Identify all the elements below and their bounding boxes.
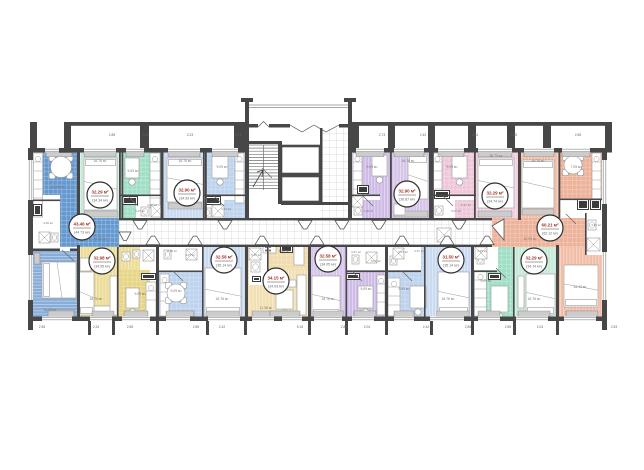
svg-text:16.76 м²: 16.76 м² (532, 159, 546, 163)
svg-text:3.29 м²: 3.29 м² (477, 249, 487, 253)
svg-text:2.53: 2.53 (611, 325, 618, 329)
svg-text:16.76 м²: 16.76 м² (216, 297, 230, 301)
svg-text:2.85: 2.85 (465, 325, 472, 329)
svg-text:2.42: 2.42 (420, 133, 427, 137)
svg-text:43.46 м²: 43.46 м² (74, 222, 91, 227)
svg-text:2.85: 2.85 (575, 133, 582, 137)
svg-text:32.90 м²: 32.90 м² (179, 188, 196, 193)
svg-text:7.05 м²: 7.05 м² (570, 165, 582, 169)
svg-text:32.29 м²: 32.29 м² (526, 256, 543, 261)
svg-text:2.04: 2.04 (364, 325, 371, 329)
svg-text:3.37 м²: 3.37 м² (351, 250, 361, 254)
svg-text:4.36 м²: 4.36 м² (591, 223, 601, 227)
svg-text:32.29 м²: 32.29 м² (92, 190, 109, 195)
svg-text:16.76 м²: 16.76 м² (94, 159, 108, 163)
svg-text:2.85: 2.85 (109, 133, 116, 137)
svg-text:32.58 м²: 32.58 м² (216, 255, 233, 260)
svg-text:(35.14 м²): (35.14 м²) (216, 264, 232, 268)
svg-text:2.85: 2.85 (505, 325, 512, 329)
svg-text:16.43 м²: 16.43 м² (44, 308, 58, 312)
svg-text:2.42: 2.42 (219, 325, 226, 329)
svg-text:9.09 м²: 9.09 м² (127, 169, 139, 173)
svg-text:(30.87 м²): (30.87 м²) (399, 198, 415, 202)
svg-text:2.73: 2.73 (235, 133, 242, 137)
svg-text:2.27 м²: 2.27 м² (221, 207, 231, 211)
svg-text:31.50 м²: 31.50 м² (443, 255, 460, 260)
svg-text:3.07 м²: 3.07 м² (185, 253, 195, 257)
svg-text:16.43 м²: 16.43 м² (574, 285, 588, 289)
svg-text:11.38 м²: 11.38 м² (260, 306, 274, 310)
svg-text:2.85: 2.85 (511, 133, 518, 137)
svg-text:2.23: 2.23 (143, 133, 150, 137)
svg-text:9.09 м²: 9.09 м² (480, 279, 492, 283)
svg-text:2.23: 2.23 (187, 133, 194, 137)
svg-text:2.85: 2.85 (193, 325, 200, 329)
svg-text:2.04: 2.04 (537, 325, 544, 329)
svg-text:2.42: 2.42 (423, 325, 430, 329)
svg-text:4.36 м²: 4.36 м² (43, 221, 53, 225)
svg-text:2.34: 2.34 (472, 133, 479, 137)
svg-text:9.09 м²: 9.09 м² (170, 289, 182, 293)
svg-text:32.29 м²: 32.29 м² (487, 191, 504, 196)
svg-text:16.76 м²: 16.76 м² (90, 297, 104, 301)
svg-text:(34.05 м²): (34.05 м²) (320, 263, 336, 267)
svg-text:(34.74 м²): (34.74 м²) (487, 200, 503, 204)
svg-text:2.27 м²: 2.27 м² (147, 203, 157, 207)
svg-text:32.98 м²: 32.98 м² (94, 256, 111, 261)
svg-text:(34.74 м²): (34.74 м²) (526, 265, 542, 269)
svg-text:(35.14 м²): (35.14 м²) (443, 264, 459, 268)
svg-text:34.15 м²: 34.15 м² (268, 276, 285, 281)
svg-text:3.37 м²: 3.37 м² (414, 249, 424, 253)
svg-text:3.07 м²: 3.07 м² (398, 250, 408, 254)
svg-text:0.07 м²: 0.07 м² (135, 209, 145, 213)
svg-text:9.09 м²: 9.09 м² (360, 287, 372, 291)
svg-text:32.58 м²: 32.58 м² (320, 254, 337, 259)
svg-text:9.09 м²: 9.09 м² (216, 165, 228, 169)
svg-text:5.07 м²: 5.07 м² (371, 259, 381, 263)
svg-text:5.07 м²: 5.07 м² (451, 209, 461, 213)
svg-text:60.21 м²: 60.21 м² (542, 223, 559, 228)
svg-text:9.09 м²: 9.09 м² (446, 165, 458, 169)
svg-text:12.46 м²: 12.46 м² (52, 185, 66, 189)
svg-text:4.86 м²: 4.86 м² (278, 249, 290, 253)
svg-text:1.28 м²: 1.28 м² (363, 209, 373, 213)
svg-text:9.09 м²: 9.09 м² (134, 292, 146, 296)
svg-text:(34.93 м²): (34.93 м²) (179, 197, 195, 201)
svg-text:9.09 м²: 9.09 м² (398, 287, 410, 291)
svg-text:5.16: 5.16 (297, 325, 304, 329)
svg-text:(34.95 м²): (34.95 м²) (94, 265, 110, 269)
svg-text:5.07 м²: 5.07 м² (251, 253, 261, 257)
svg-text:16.76 м²: 16.76 м² (322, 297, 336, 301)
svg-text:2.27 м²: 2.27 м² (461, 203, 471, 207)
svg-text:16.76 м²: 16.76 м² (528, 297, 542, 301)
svg-text:9.09 м²: 9.09 м² (366, 165, 378, 169)
svg-text:(34.34 м²): (34.34 м²) (92, 199, 108, 203)
svg-text:(62.12 м²): (62.12 м²) (542, 232, 558, 236)
svg-text:16.76 м²: 16.76 м² (442, 297, 456, 301)
svg-text:3.28 м²: 3.28 м² (167, 249, 177, 253)
svg-text:(24.03 м²): (24.03 м²) (268, 285, 284, 289)
svg-text:16.75 м²: 16.75 м² (179, 159, 193, 163)
svg-text:10.09 м²: 10.09 м² (524, 237, 538, 241)
svg-text:2.55: 2.55 (39, 325, 46, 329)
svg-text:16.75 м²: 16.75 м² (490, 154, 504, 158)
svg-text:10.20 м²: 10.20 м² (94, 237, 108, 241)
svg-text:16.76 м²: 16.76 м² (402, 159, 416, 163)
svg-text:2.85: 2.85 (341, 325, 348, 329)
svg-text:2.85: 2.85 (127, 325, 134, 329)
svg-text:32.90 м²: 32.90 м² (399, 189, 416, 194)
svg-text:2.73: 2.73 (379, 133, 386, 137)
svg-text:2.34: 2.34 (93, 325, 100, 329)
svg-text:(44.73 м²): (44.73 м²) (74, 231, 90, 235)
